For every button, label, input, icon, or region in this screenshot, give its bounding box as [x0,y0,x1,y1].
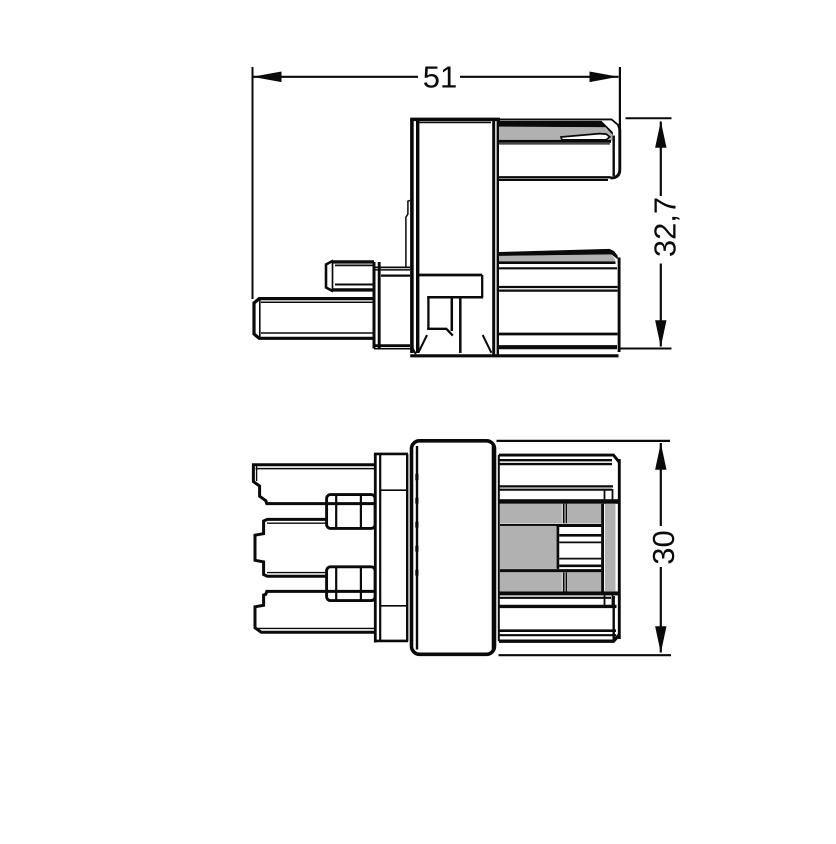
svg-text:30: 30 [646,530,681,564]
svg-text:51: 51 [423,59,457,94]
svg-text:32,7: 32,7 [648,197,683,257]
